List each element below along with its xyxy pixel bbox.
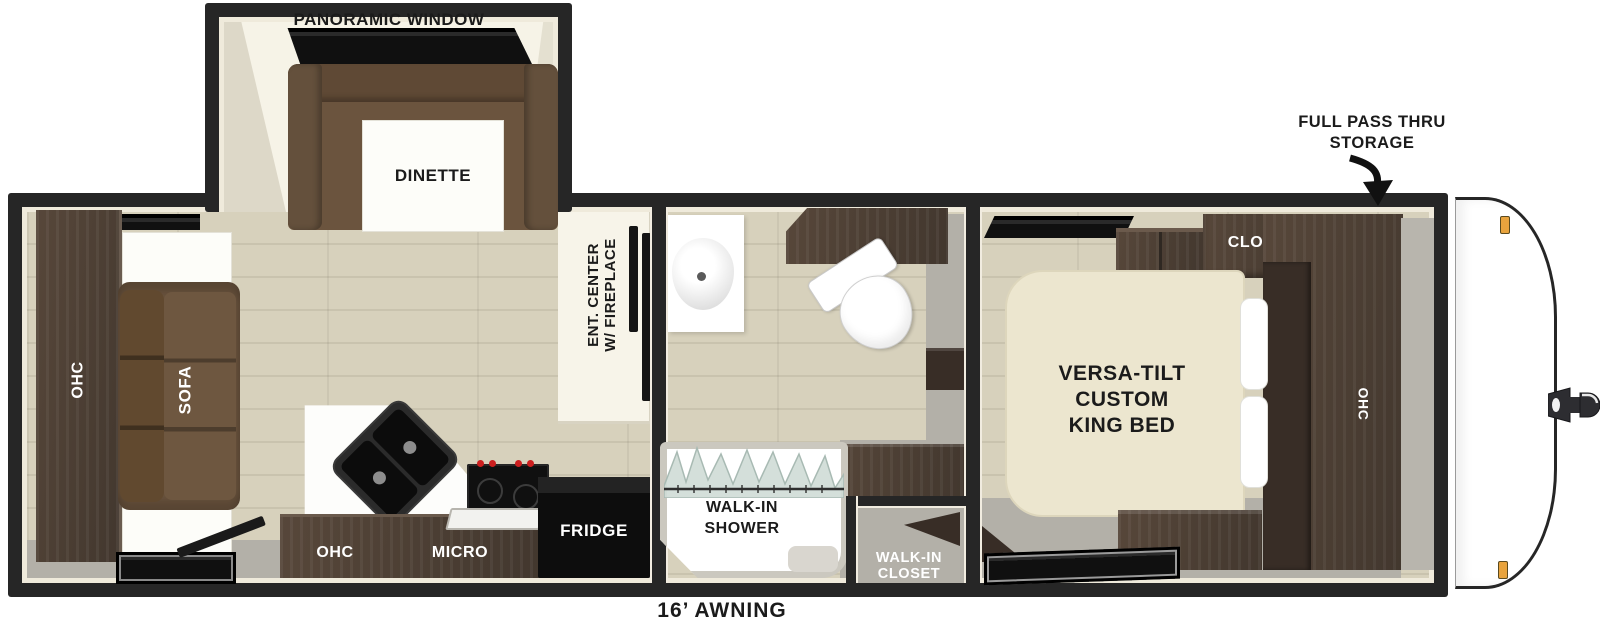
walk-in-closet-label-line1: WALK-IN bbox=[876, 550, 942, 566]
micro-label: MICRO bbox=[432, 544, 488, 562]
bedroom-top-window bbox=[984, 216, 1134, 238]
walk-in-closet-wall-left bbox=[846, 496, 858, 583]
micro-label-box: MICRO bbox=[418, 540, 502, 566]
bedroom-ohc-label-box: OHC bbox=[1333, 374, 1393, 434]
bed-pillow-bottom bbox=[1240, 396, 1268, 488]
walk-in-closet-label-box: WALK-IN CLOSET bbox=[858, 550, 960, 582]
stove-knob-3 bbox=[515, 460, 522, 467]
dinette-label: DINETTE bbox=[395, 166, 471, 186]
fridge-label: FRIDGE bbox=[560, 521, 628, 541]
fridge-label-box: FRIDGE bbox=[548, 518, 640, 544]
kitchen-ohc-label-box: OHC bbox=[295, 540, 375, 566]
front-cap bbox=[1455, 197, 1557, 589]
dinette-booth-left-arm bbox=[288, 64, 322, 230]
bed-label-line3: KING BED bbox=[1069, 413, 1176, 439]
pass-thru-storage-line2: STORAGE bbox=[1330, 133, 1415, 154]
bed-label-box: VERSA-TILT CUSTOM KING BED bbox=[1012, 358, 1232, 442]
shower-glass bbox=[664, 444, 844, 498]
pass-thru-side-panel bbox=[1401, 218, 1434, 570]
bed-label-line2: CUSTOM bbox=[1075, 387, 1169, 413]
bed-pillow-top bbox=[1240, 298, 1268, 390]
ent-center-label: ENT. CENTER W/ FIREPLACE bbox=[585, 238, 619, 352]
pass-thru-storage-label: FULL PASS THRU STORAGE bbox=[1282, 110, 1462, 156]
hitch-coupler bbox=[1548, 382, 1600, 432]
panoramic-window bbox=[280, 28, 532, 64]
kitchen-ohc-label: OHC bbox=[316, 544, 353, 562]
bed-label-line1: VERSA-TILT bbox=[1058, 361, 1185, 387]
living-top-window bbox=[112, 214, 200, 230]
dinette-table: DINETTE bbox=[362, 120, 504, 232]
stove-knob-2 bbox=[489, 460, 496, 467]
stove-burner-right bbox=[513, 484, 539, 510]
stove-burner-left bbox=[477, 478, 503, 504]
fridge-top-face bbox=[538, 477, 650, 493]
wall-bath-bedroom bbox=[964, 207, 982, 583]
awning-label: 16’ AWNING bbox=[657, 599, 786, 623]
shower-label-line2: SHOWER bbox=[705, 518, 780, 539]
marker-light-top bbox=[1500, 216, 1510, 234]
pass-thru-storage-arrow bbox=[1330, 152, 1400, 208]
bedroom-wardrobe-side bbox=[1263, 262, 1311, 570]
dinette-booth-back bbox=[288, 64, 558, 102]
walk-in-closet-label-line2: CLOSET bbox=[878, 566, 940, 582]
microwave-tray bbox=[445, 508, 544, 530]
floorplan-stage: PANORAMIC WINDOW DINETTE OHC SOFA bbox=[0, 0, 1600, 624]
end-table-top bbox=[122, 232, 232, 284]
pass-thru-storage-line1: FULL PASS THRU bbox=[1298, 112, 1446, 133]
bedroom-bottom-window bbox=[984, 547, 1180, 586]
walk-in-closet-wall-top bbox=[846, 496, 966, 508]
living-bottom-window bbox=[116, 552, 236, 584]
sofa-label-box: SOFA bbox=[155, 360, 215, 420]
stove-knob-1 bbox=[477, 460, 484, 467]
bath-shelf bbox=[926, 348, 964, 390]
bath-sink-drain bbox=[697, 272, 706, 281]
awning-label-box: 16’ AWNING bbox=[622, 598, 822, 624]
living-ohc-label-box: OHC bbox=[49, 350, 109, 410]
marker-light-bottom bbox=[1498, 561, 1508, 579]
stove-knob-4 bbox=[527, 460, 534, 467]
shower-label-box: WALK-IN SHOWER bbox=[676, 496, 808, 540]
panoramic-window-label: PANORAMIC WINDOW bbox=[269, 10, 509, 30]
bedroom-ohc-label: OHC bbox=[1355, 388, 1371, 421]
living-ohc-label: OHC bbox=[70, 361, 88, 398]
shower-step bbox=[788, 546, 838, 572]
sofa-label: SOFA bbox=[175, 366, 195, 415]
shower-label-line1: WALK-IN bbox=[706, 497, 778, 518]
